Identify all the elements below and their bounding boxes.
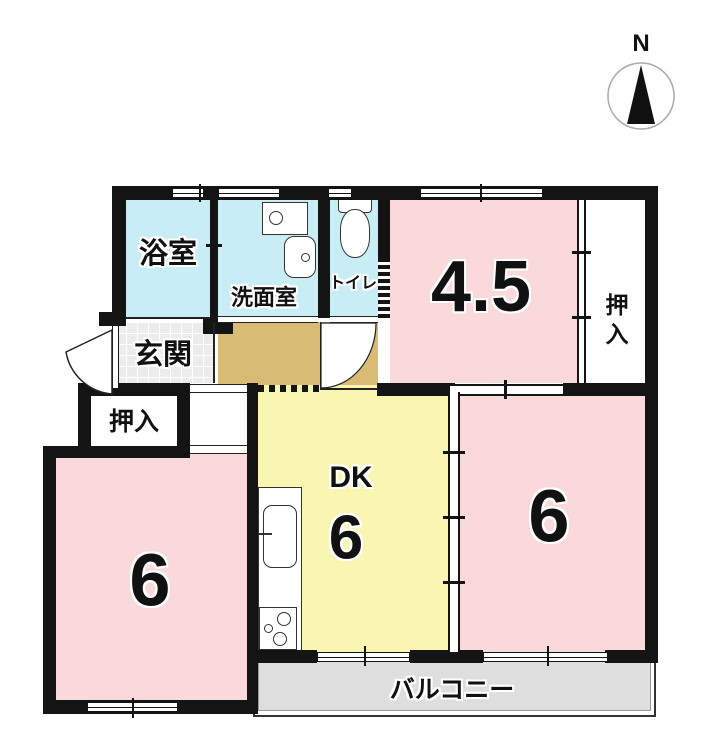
label-tatami-4-5: 4.5 bbox=[431, 246, 531, 328]
floor-plan: N 浴室 洗面室 トイレ 4.5 押入 玄関 押入 DK 6 6 6 バルコニー bbox=[0, 0, 718, 750]
tick-balcony-2 bbox=[547, 646, 549, 666]
wash-basin-icon bbox=[284, 236, 316, 278]
door-washroom bbox=[218, 316, 318, 323]
tick-partition-3 bbox=[443, 581, 465, 584]
sliding-partition-dk-room6 bbox=[448, 392, 460, 652]
window-balcony-2 bbox=[483, 652, 608, 662]
door-toilet bbox=[330, 316, 378, 323]
tick-bath-wall bbox=[206, 244, 222, 247]
label-closet-left: 押入 bbox=[109, 402, 159, 438]
wall-closet-left-top bbox=[78, 383, 190, 396]
wall-washroom-toilet bbox=[318, 200, 330, 318]
wall-right bbox=[645, 186, 658, 663]
tick-closet-door-1 bbox=[572, 251, 591, 254]
wall-dk-left-column bbox=[247, 383, 258, 714]
compass-n-label: N bbox=[632, 30, 649, 58]
wall-hatched-segment bbox=[378, 262, 390, 318]
wall-room6-left-top bbox=[43, 446, 190, 458]
wall-mid-left-seg bbox=[377, 383, 455, 396]
closet-upper-right-floor bbox=[586, 200, 645, 383]
window-toilet bbox=[328, 188, 352, 198]
tick-partition-1 bbox=[443, 451, 465, 454]
label-balcony: バルコニー bbox=[390, 670, 515, 706]
line-tile-edge bbox=[213, 322, 215, 383]
door-corridor-top bbox=[190, 384, 247, 393]
entrance-threshold bbox=[112, 326, 119, 388]
label-entrance: 玄関 bbox=[134, 331, 192, 373]
label-toilet: トイレ bbox=[329, 269, 377, 293]
tick-window-6left bbox=[132, 698, 134, 718]
wall-left-lower bbox=[43, 446, 56, 714]
kitchen-sink-icon bbox=[263, 505, 297, 568]
label-dk-size: 6 bbox=[329, 503, 363, 574]
tick-closet-door-2 bbox=[572, 316, 591, 319]
label-room6-left: 6 bbox=[129, 538, 170, 623]
wall-balcony-seg1 bbox=[247, 650, 317, 663]
label-dk: DK bbox=[329, 461, 372, 495]
hallway-floor bbox=[218, 322, 378, 390]
wall-mid-right-seg bbox=[563, 383, 658, 396]
door-corridor-bottom bbox=[190, 445, 247, 454]
wall-bath-washroom bbox=[210, 200, 218, 318]
compass: N bbox=[595, 30, 687, 134]
dk-open-boundary bbox=[258, 385, 320, 392]
tick-partition-2 bbox=[443, 516, 465, 519]
tick-window-45 bbox=[480, 184, 482, 202]
stove-icon bbox=[259, 607, 297, 650]
tick-door-45-6 bbox=[504, 380, 507, 399]
line-bath-bottom bbox=[126, 317, 210, 319]
tick-balcony-1 bbox=[364, 646, 366, 666]
wall-balcony-seg3 bbox=[605, 650, 658, 663]
label-closet-right: 押入 bbox=[598, 293, 632, 351]
kitchen-faucet-icon bbox=[258, 533, 272, 535]
wall-left-upper bbox=[112, 186, 126, 322]
wall-entrance-cap bbox=[99, 312, 126, 326]
line-arc-cell-left bbox=[320, 322, 321, 390]
wall-balcony-seg2 bbox=[410, 650, 483, 663]
label-room6-right: 6 bbox=[528, 474, 569, 559]
window-top-2 bbox=[218, 188, 280, 198]
label-bathroom: 浴室 bbox=[139, 230, 197, 272]
sliding-door-closet-right bbox=[577, 200, 586, 383]
line-arc-cell-bottom bbox=[320, 388, 378, 390]
washing-machine-icon bbox=[262, 202, 308, 235]
label-washroom: 洗面室 bbox=[231, 280, 297, 312]
tick-window-top bbox=[199, 184, 201, 202]
toilet-bowl-icon bbox=[340, 209, 370, 258]
